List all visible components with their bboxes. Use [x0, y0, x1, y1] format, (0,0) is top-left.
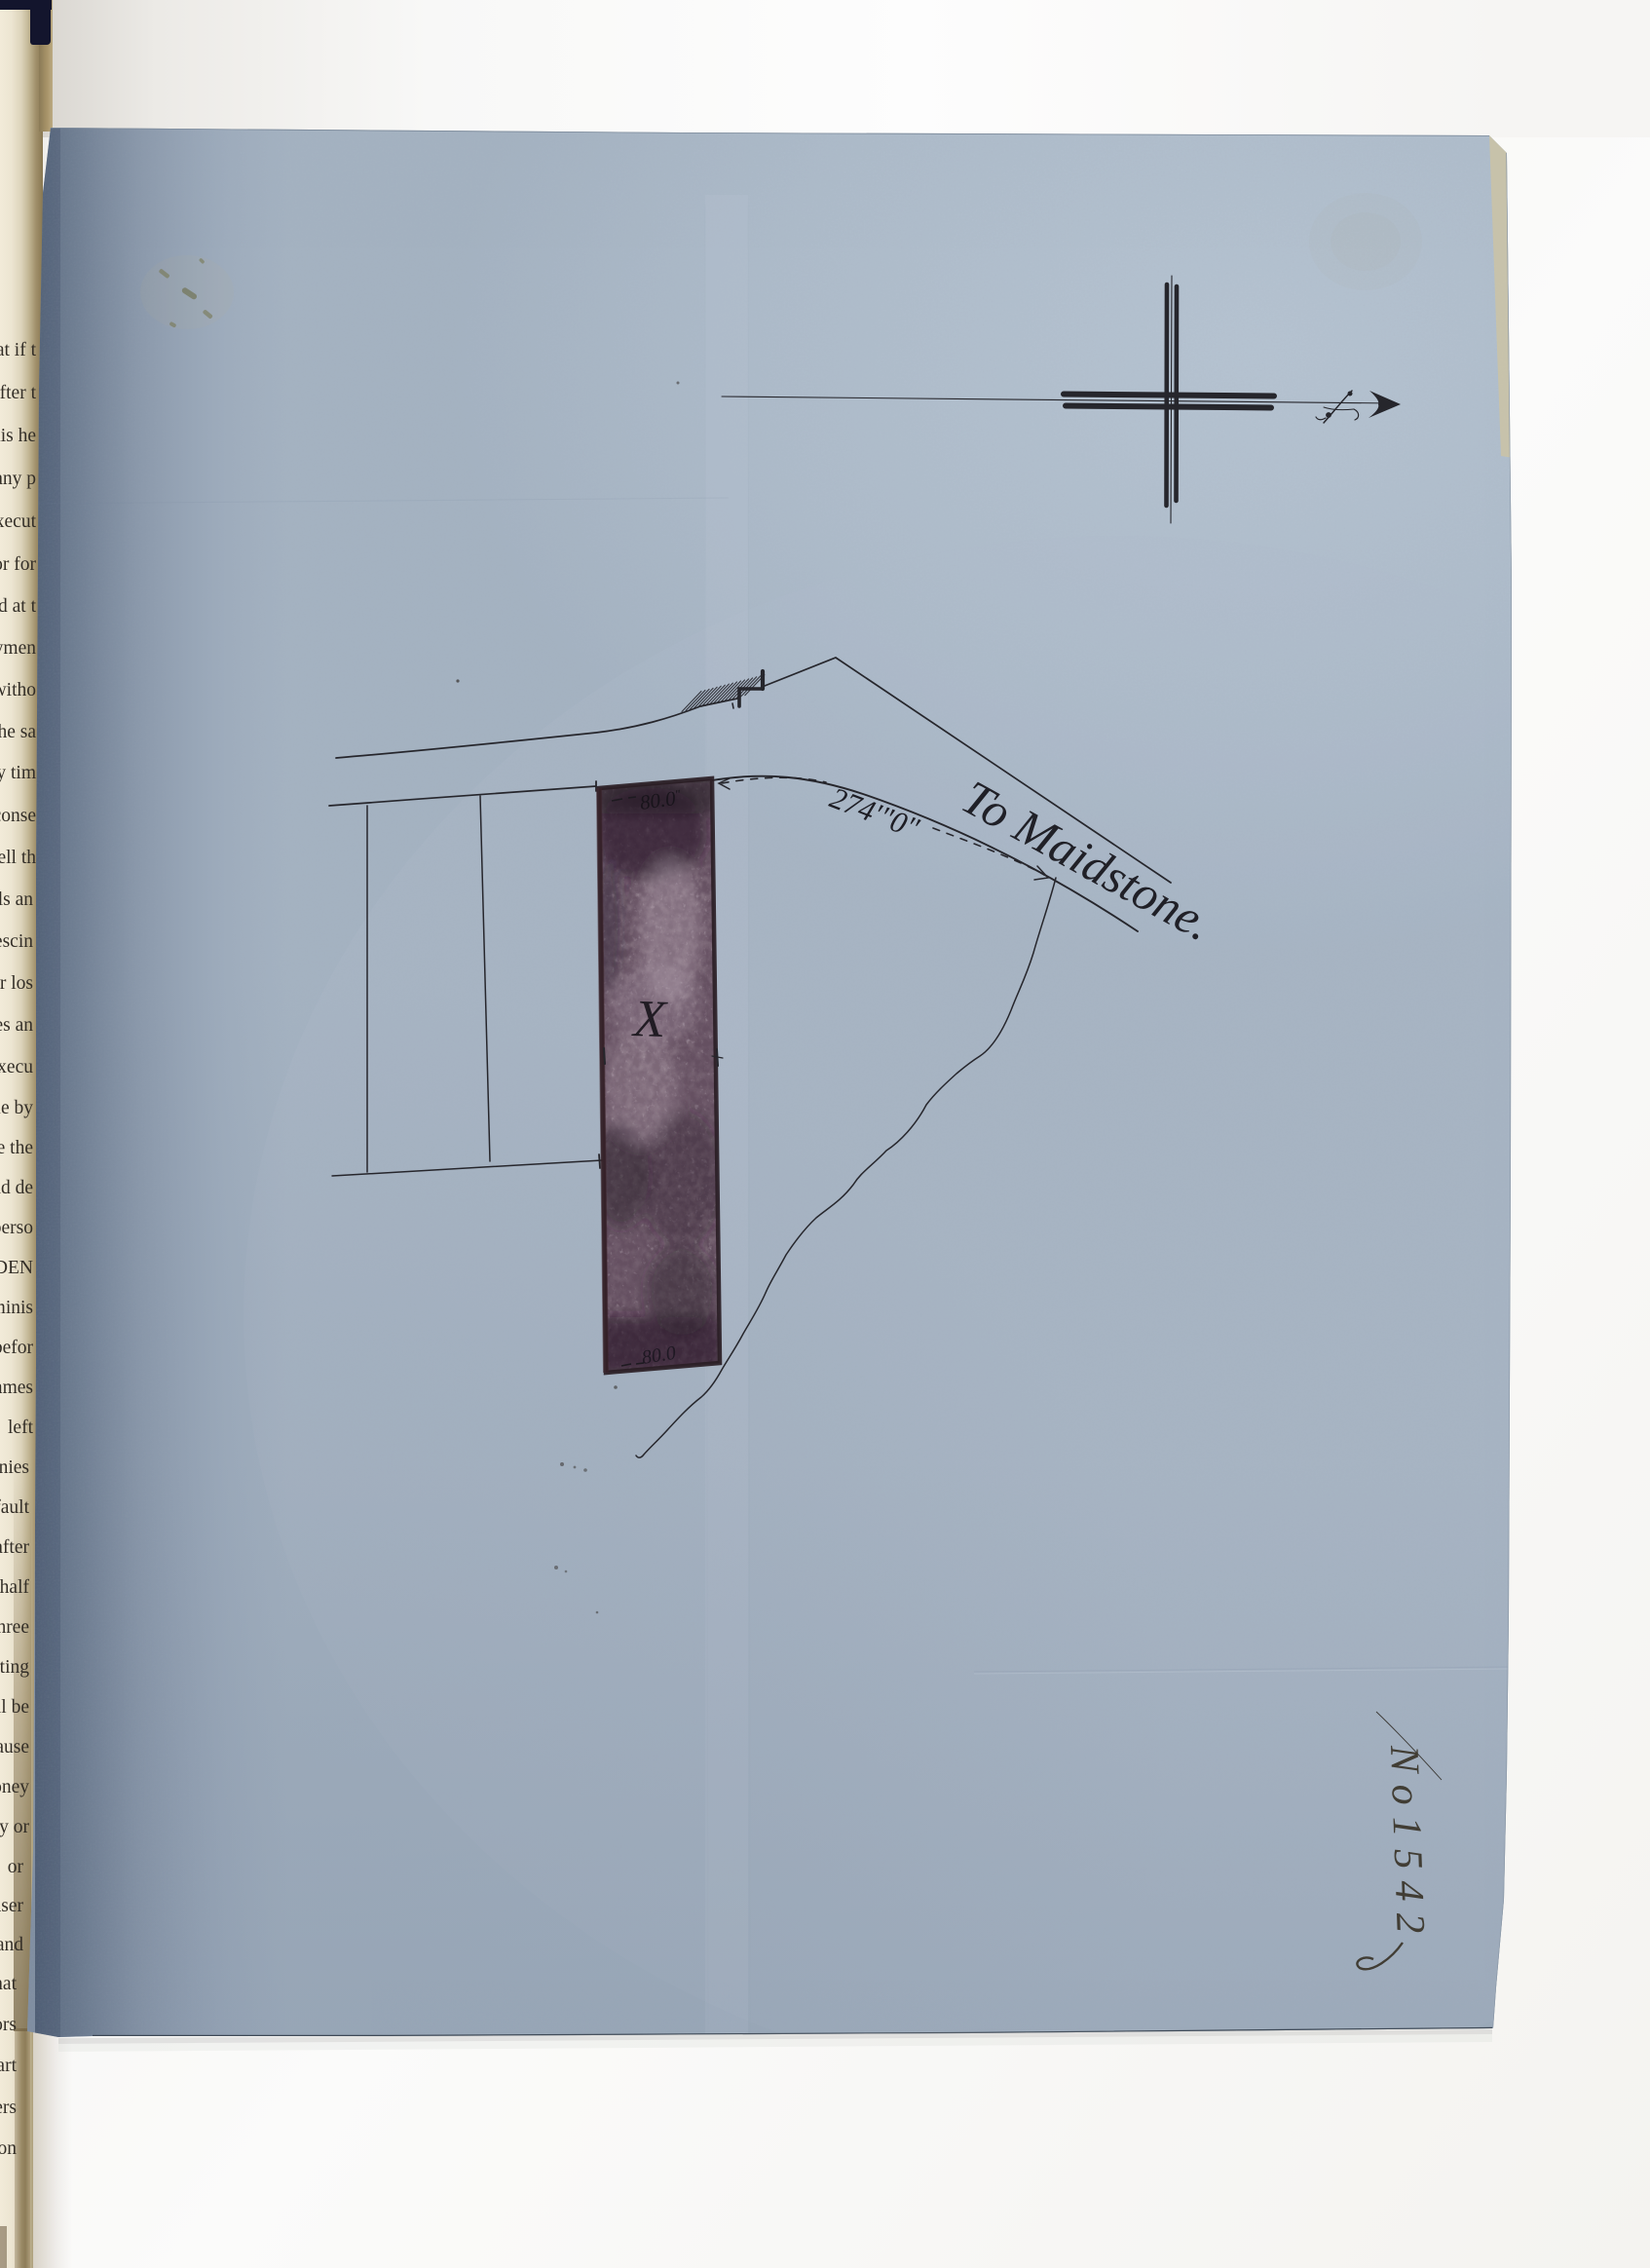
svg-text:X: X — [631, 989, 669, 1048]
svg-text:No1542: No1542 — [1381, 1744, 1433, 1946]
